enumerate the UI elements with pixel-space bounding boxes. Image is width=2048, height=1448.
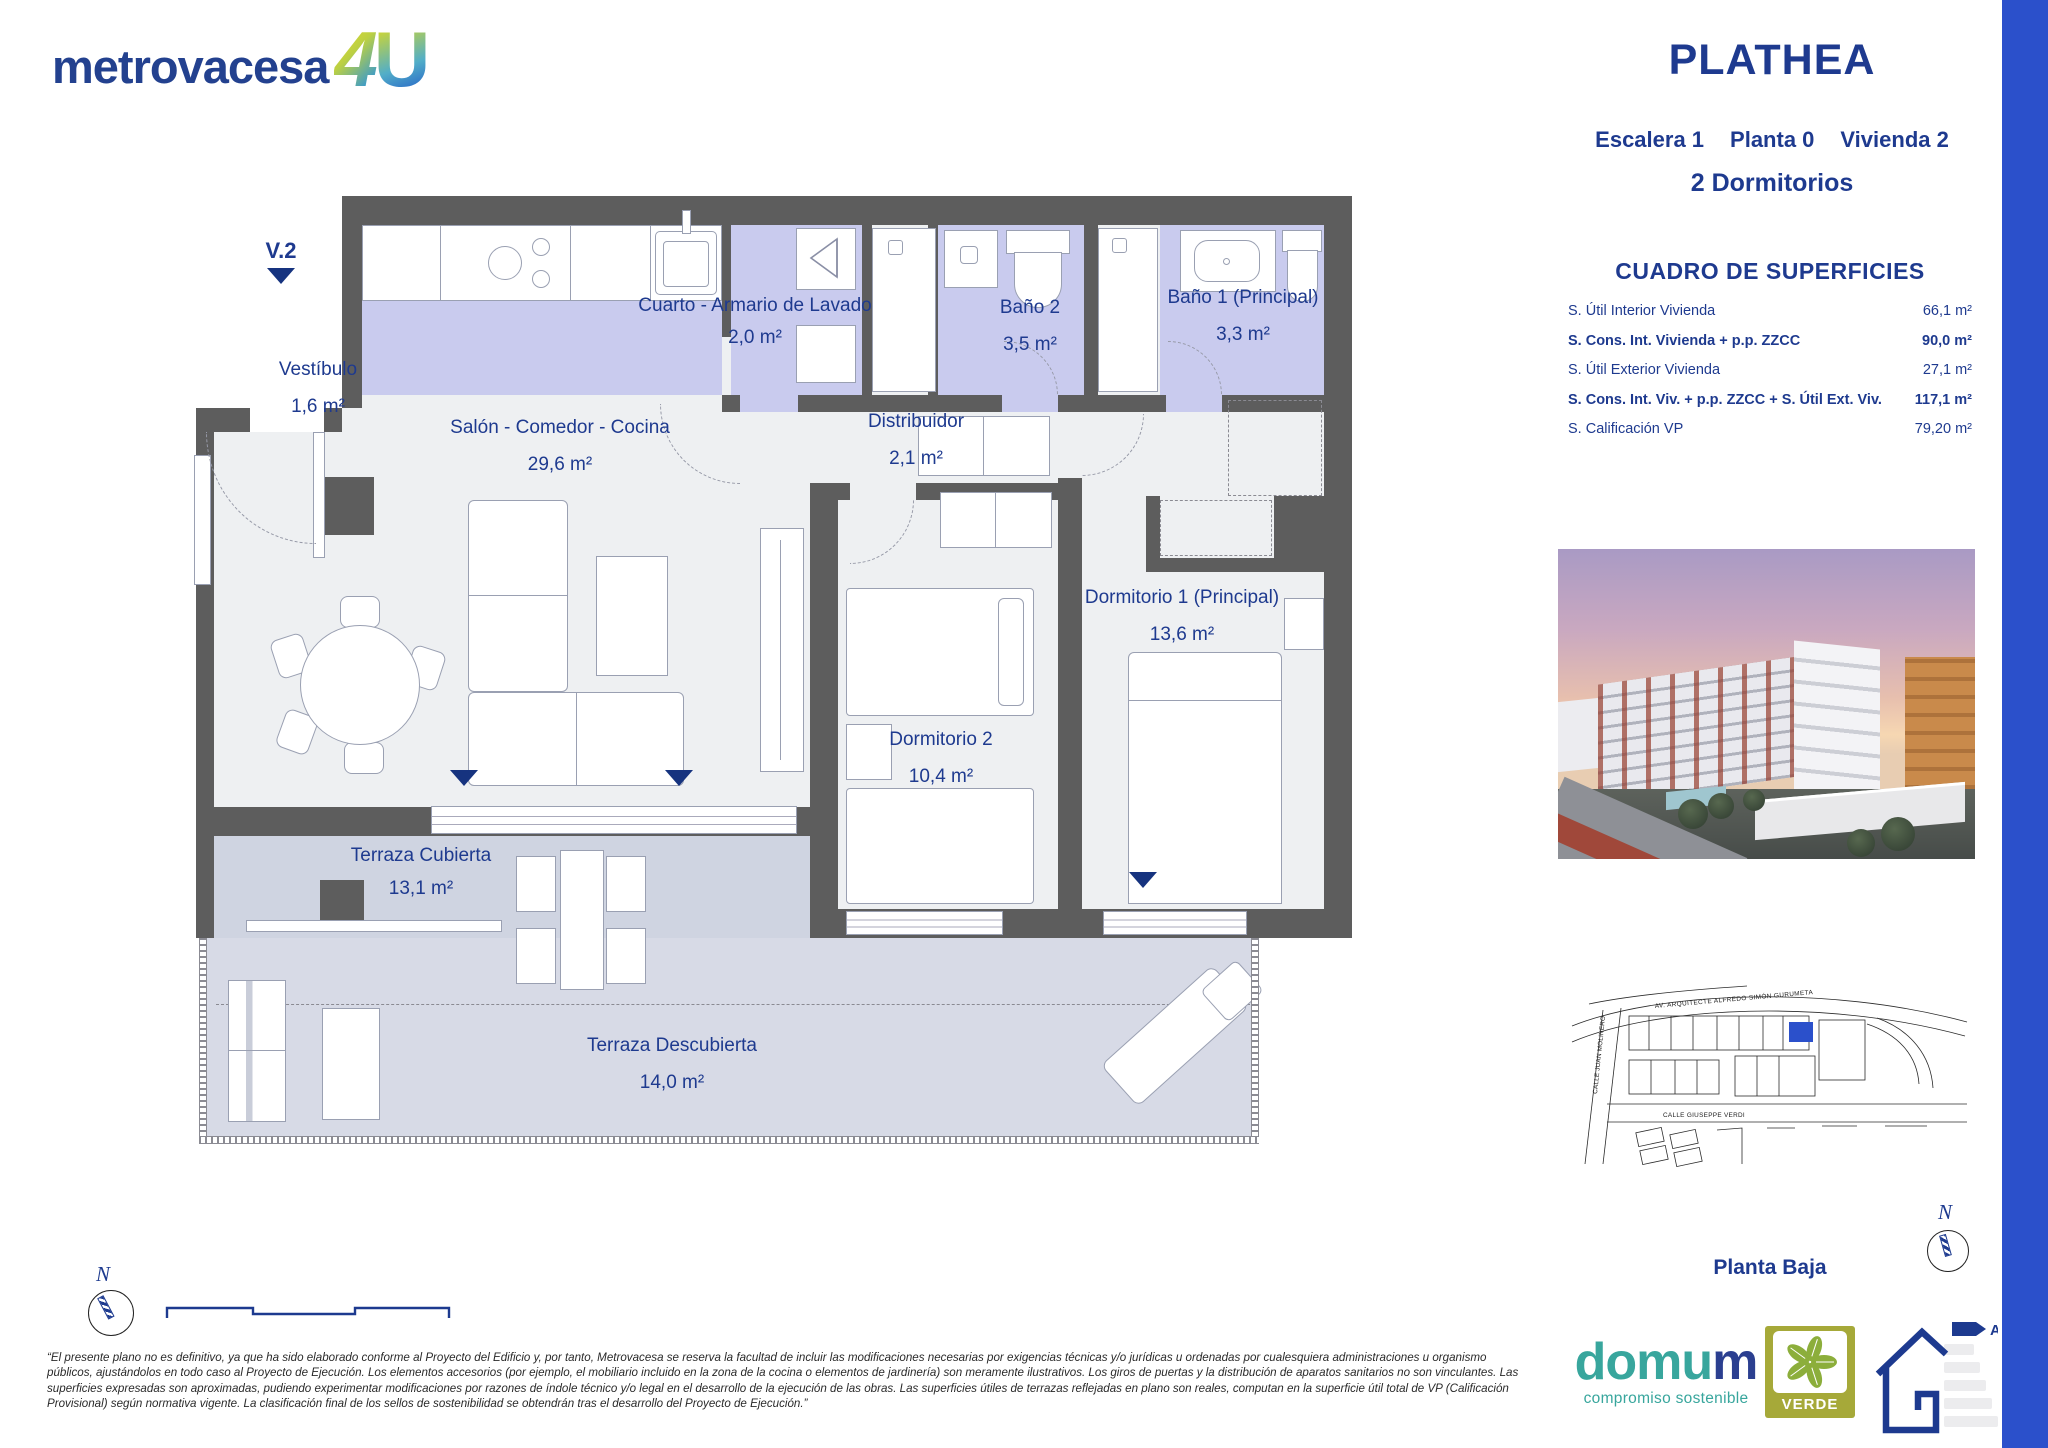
wall — [342, 196, 1352, 225]
verde-certification-logo: VERDE — [1765, 1326, 1855, 1418]
room-label-lavado: Cuarto - Armario de Lavado 2,0 m² — [630, 294, 880, 350]
domum-wordmark-m: m — [1712, 1333, 1757, 1391]
terrace-fence-right — [1251, 938, 1259, 1144]
room-name: Baño 1 (Principal) — [1167, 286, 1318, 310]
terrace-projection-dashed-line — [216, 1004, 1250, 1005]
room-area: 3,3 m² — [1216, 323, 1270, 347]
room-area: 1,6 m² — [291, 395, 345, 419]
site-plan-map: AV. ARQUITECTE ALFREDO SIMÓN GURUMETA CA… — [1567, 964, 1972, 1186]
sofa-cushion-line — [576, 693, 577, 785]
slider-arrow-icon — [665, 770, 693, 786]
energy-rating-letter: A — [1990, 1322, 1998, 1339]
stove-burner-icon — [488, 246, 522, 280]
shower-handle — [1112, 238, 1127, 253]
stove-burner-icon — [532, 270, 550, 288]
media-unit — [760, 528, 804, 772]
room-name: Dormitorio 1 (Principal) — [1085, 586, 1279, 610]
wardrobe-dashed — [1160, 500, 1272, 556]
room-label-bano1: Baño 1 (Principal) 3,3 m² — [1118, 286, 1368, 347]
wardrobe-dashed — [1228, 400, 1322, 496]
toilet — [1282, 230, 1322, 252]
room-name: Baño 2 — [1000, 296, 1060, 320]
nightstand — [846, 724, 892, 780]
wall — [810, 483, 838, 909]
counter-divider — [440, 226, 441, 300]
room-label-terraza-cubierta: Terraza Cubierta 13,1 m² — [351, 844, 491, 901]
tree — [1881, 817, 1915, 851]
room-area: 13,1 m² — [389, 877, 453, 901]
slider-arrow-icon — [1129, 872, 1157, 888]
room-area: 10,4 m² — [909, 765, 973, 789]
room-label-vestibulo: Vestíbulo 1,6 m² — [279, 358, 357, 419]
door-opening — [740, 395, 798, 412]
bedroom1-window — [1103, 911, 1247, 935]
tree — [1743, 789, 1765, 811]
outdoor-sofa-line — [229, 1050, 285, 1051]
room-area: 2,1 m² — [889, 447, 943, 471]
room-name: Cuarto - Armario de Lavado — [638, 294, 871, 318]
sink-tap — [682, 210, 691, 234]
terrace-chair — [606, 856, 646, 912]
dining-chair — [340, 596, 380, 628]
room-name: Dormitorio 2 — [889, 728, 992, 752]
verde-leaf-icon — [1773, 1331, 1847, 1393]
kitchen-sink-basin — [663, 241, 709, 287]
domum-logo: domum compromiso sostenible — [1566, 1336, 1766, 1408]
wall — [1146, 558, 1288, 572]
entrance-arrow-icon — [267, 268, 295, 284]
sofa-cushion-line — [469, 595, 567, 596]
sink-drain — [1223, 258, 1230, 265]
dining-table — [300, 625, 420, 745]
highlighted-unit — [1789, 1022, 1813, 1042]
tree — [1847, 829, 1875, 857]
bedroom2-window — [846, 911, 1003, 935]
terrace-shelf — [246, 920, 502, 932]
hall-closet-divider — [983, 417, 984, 475]
street-name: AV. ARQUITECTE ALFREDO SIMÓN GURUMETA — [1654, 987, 1813, 1010]
terrace-chair — [606, 928, 646, 984]
plan-sheet: metrovacesa4U PLATHEA Escalera 1 Planta … — [0, 0, 2048, 1448]
room-area: 14,0 m² — [640, 1071, 704, 1095]
single-bed — [846, 788, 1034, 904]
room-name: Terraza Cubierta — [351, 844, 491, 868]
terrace-table — [560, 850, 604, 990]
room-name: Vestíbulo — [279, 358, 357, 382]
domum-wordmark: domu — [1575, 1333, 1713, 1391]
door-opening — [850, 483, 916, 500]
counter-divider — [570, 226, 571, 300]
domum-tagline: compromiso sostenible — [1566, 1390, 1766, 1408]
coffee-table — [596, 556, 668, 676]
room-label-distribuidor: Distribuidor 2,1 m² — [868, 410, 964, 471]
north-label: N — [1938, 1200, 1952, 1225]
wardrobe — [940, 492, 1052, 548]
terrace-chair — [516, 928, 556, 984]
room-area: 3,5 m² — [1003, 333, 1057, 357]
vestibule-window — [194, 455, 211, 585]
washer-chevron-icon — [797, 229, 853, 287]
room-area: 29,6 m² — [528, 453, 592, 477]
legal-disclaimer: “El presente plano no es definitivo, ya … — [47, 1350, 1519, 1412]
double-bed — [1128, 652, 1282, 904]
storage-handle — [888, 240, 903, 255]
energy-rating-icon: A — [1872, 1318, 1998, 1444]
room-name: Terraza Descubierta — [587, 1034, 757, 1058]
room-name: Salón - Comedor - Cocina — [450, 416, 670, 440]
outdoor-sofa — [228, 980, 286, 1122]
media-unit-line — [780, 540, 781, 760]
wardrobe-line — [995, 493, 996, 547]
room-label-bano2: Baño 2 3,5 m² — [1000, 296, 1060, 357]
terrace-chair — [516, 856, 556, 912]
floor-level-label: Planta Baja — [1713, 1256, 1826, 1280]
room-label-salon: Salón - Comedor - Cocina 29,6 m² — [445, 416, 675, 477]
door-opening — [1002, 395, 1058, 412]
room-label-dormitorio1: Dormitorio 1 (Principal) 13,6 m² — [1017, 586, 1347, 647]
entrance-label: V.2 — [265, 238, 296, 264]
terrace-fence-bottom — [199, 1136, 1259, 1144]
street-name: CALLE GIUSEPPE VERDI — [1663, 1112, 1745, 1119]
wall — [1274, 496, 1324, 572]
living-room-slider-window — [431, 806, 797, 834]
shower-drain — [960, 246, 978, 264]
slider-arrow-icon — [450, 770, 478, 786]
room-area: 2,0 m² — [728, 326, 782, 350]
stove-burner-icon — [532, 238, 550, 256]
tree — [1708, 793, 1734, 819]
toilet — [1006, 230, 1070, 254]
terrace-fence-left — [199, 938, 207, 1144]
building-render-photo — [1558, 549, 1975, 859]
room-label-terraza-descubierta: Terraza Descubierta 14,0 m² — [587, 1034, 757, 1095]
scale-bar — [165, 1300, 455, 1326]
verde-label: VERDE — [1782, 1396, 1839, 1413]
dining-chair — [344, 742, 384, 774]
wall — [1084, 196, 1098, 395]
north-label: N — [96, 1262, 110, 1287]
room-name: Distribuidor — [868, 410, 964, 434]
sofa-section — [468, 500, 568, 692]
outdoor-side-table — [322, 1008, 380, 1120]
door-opening — [1166, 395, 1222, 412]
room-label-dormitorio2: Dormitorio 2 10,4 m² — [889, 728, 992, 789]
room-area: 13,6 m² — [1150, 623, 1214, 647]
tree — [1678, 799, 1708, 829]
storage-column — [872, 228, 936, 392]
door-opening — [1058, 412, 1082, 478]
street-name: CALLE JUAN MOLINERO — [1592, 1016, 1607, 1095]
bed-sheet-line — [1129, 700, 1281, 701]
counter-divider — [650, 226, 651, 300]
washing-machine — [796, 228, 856, 290]
